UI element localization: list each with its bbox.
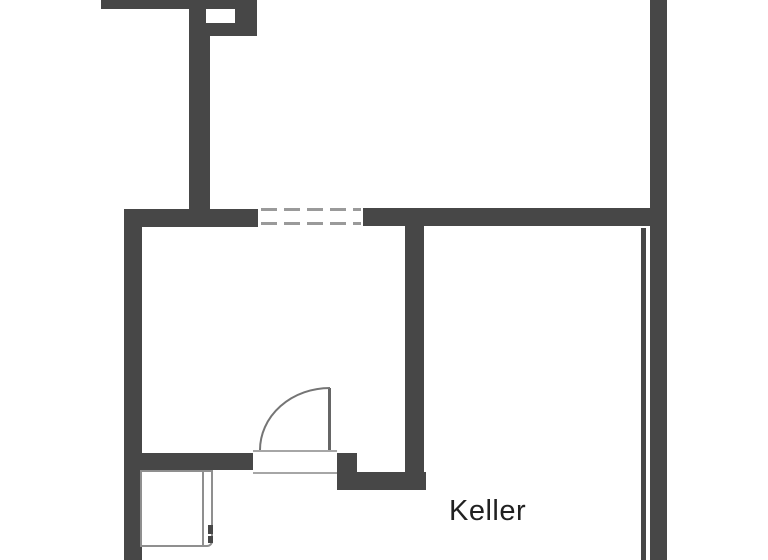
floor-plan: Keller <box>0 0 768 560</box>
wall-right-exterior <box>650 0 667 560</box>
window-dash-line-2 <box>261 222 361 225</box>
wall-right-inner-line <box>641 228 646 560</box>
door-threshold <box>253 450 337 474</box>
wall-keller-vertical <box>405 225 424 490</box>
shaft-inner-line <box>202 470 204 546</box>
door-leaf <box>328 388 331 450</box>
wall-upper-vertical <box>189 9 210 225</box>
shaft-mark-2 <box>208 536 213 543</box>
wall-mid-horizontal-left <box>124 209 258 227</box>
window-dash-line-1 <box>261 208 361 211</box>
wall-mid-horizontal-right <box>363 208 652 226</box>
walls-layer <box>0 0 768 560</box>
chimney-flue-opening <box>206 9 235 23</box>
wall-room-bottom <box>124 453 253 470</box>
shaft-mark-1 <box>208 525 213 534</box>
wall-lower-bar <box>337 472 426 490</box>
room-label-keller: Keller <box>449 497 526 526</box>
